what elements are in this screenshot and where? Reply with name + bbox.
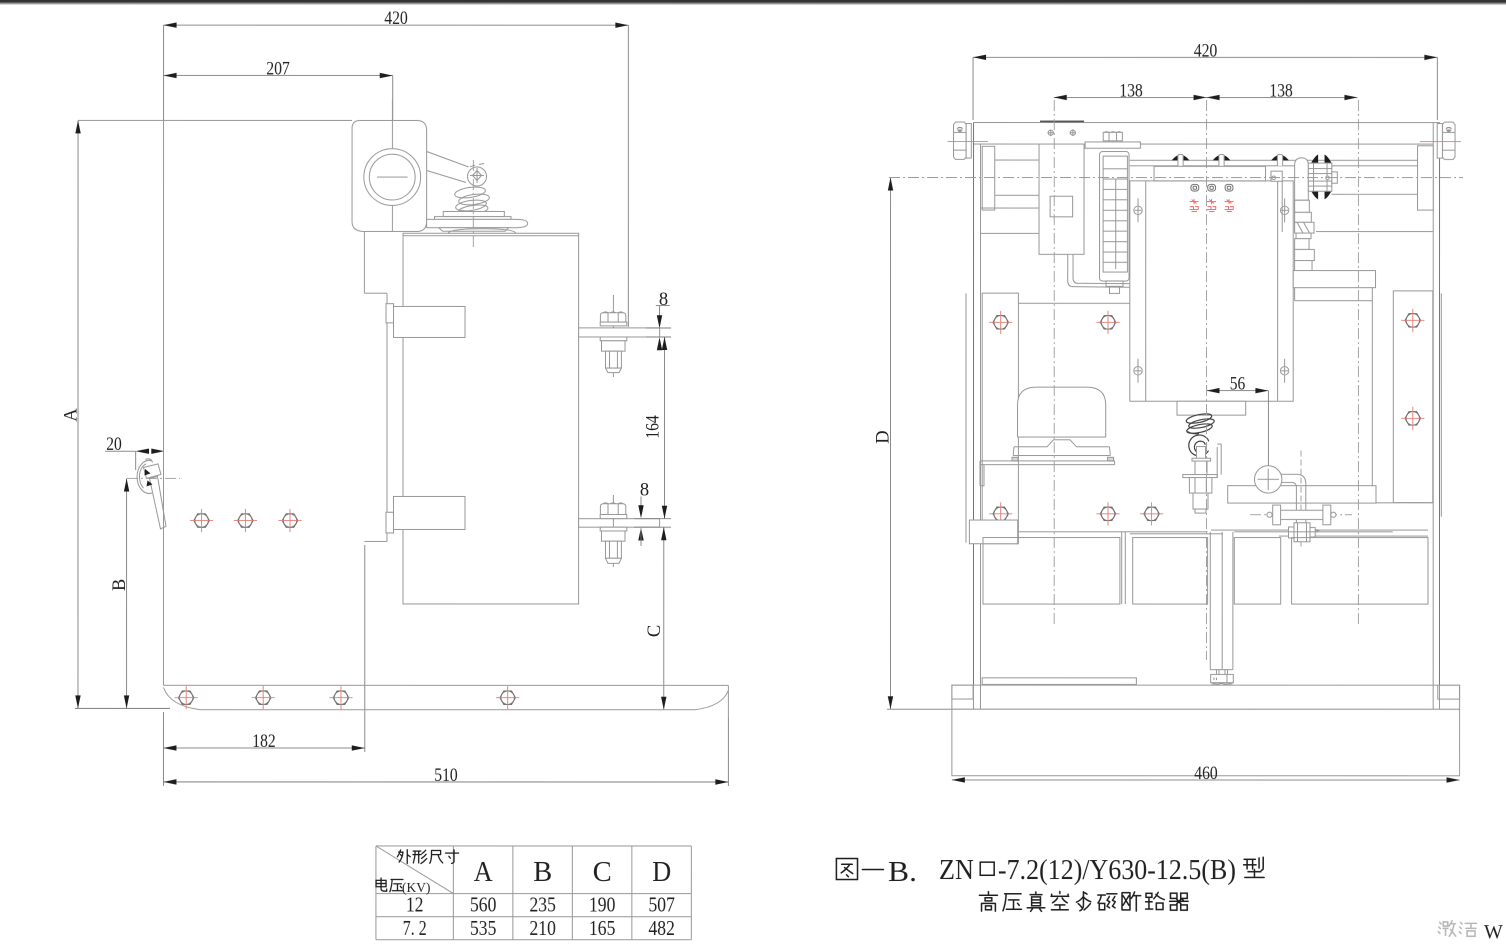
svg-text:B: B [533, 856, 552, 888]
svg-text:7. 2: 7. 2 [403, 916, 427, 940]
svg-text:560: 560 [470, 892, 497, 916]
svg-text:207: 207 [266, 60, 290, 80]
svg-text:D: D [652, 856, 671, 888]
svg-text:507: 507 [648, 892, 675, 916]
svg-text:A: A [62, 408, 82, 422]
svg-text:235: 235 [529, 892, 556, 916]
svg-text:138: 138 [1269, 81, 1293, 101]
svg-text:8: 8 [659, 290, 668, 310]
svg-text:B.: B. [888, 856, 917, 888]
svg-text:-7.2(12)/Y630-12.5(B): -7.2(12)/Y630-12.5(B) [998, 854, 1236, 886]
svg-text:460: 460 [1194, 764, 1218, 784]
svg-text:165: 165 [589, 916, 616, 940]
svg-text:B: B [110, 579, 130, 591]
svg-text:56: 56 [1230, 374, 1246, 394]
svg-text:535: 535 [470, 916, 497, 940]
svg-text:482: 482 [648, 916, 675, 940]
svg-text:C: C [593, 856, 612, 888]
svg-text:510: 510 [434, 766, 458, 786]
svg-text:ZN: ZN [939, 854, 974, 886]
svg-text:420: 420 [1194, 41, 1218, 61]
svg-text:D: D [874, 430, 894, 443]
svg-text:182: 182 [252, 732, 276, 752]
svg-text:W: W [1484, 921, 1503, 943]
svg-text:190: 190 [589, 892, 616, 916]
svg-text:164: 164 [644, 415, 664, 439]
svg-text:138: 138 [1119, 81, 1143, 101]
svg-text:420: 420 [384, 9, 408, 29]
svg-text:20: 20 [106, 435, 122, 455]
svg-text:210: 210 [529, 916, 556, 940]
svg-text:12: 12 [406, 892, 424, 916]
svg-text:A: A [474, 856, 493, 888]
svg-text:C: C [645, 625, 665, 637]
